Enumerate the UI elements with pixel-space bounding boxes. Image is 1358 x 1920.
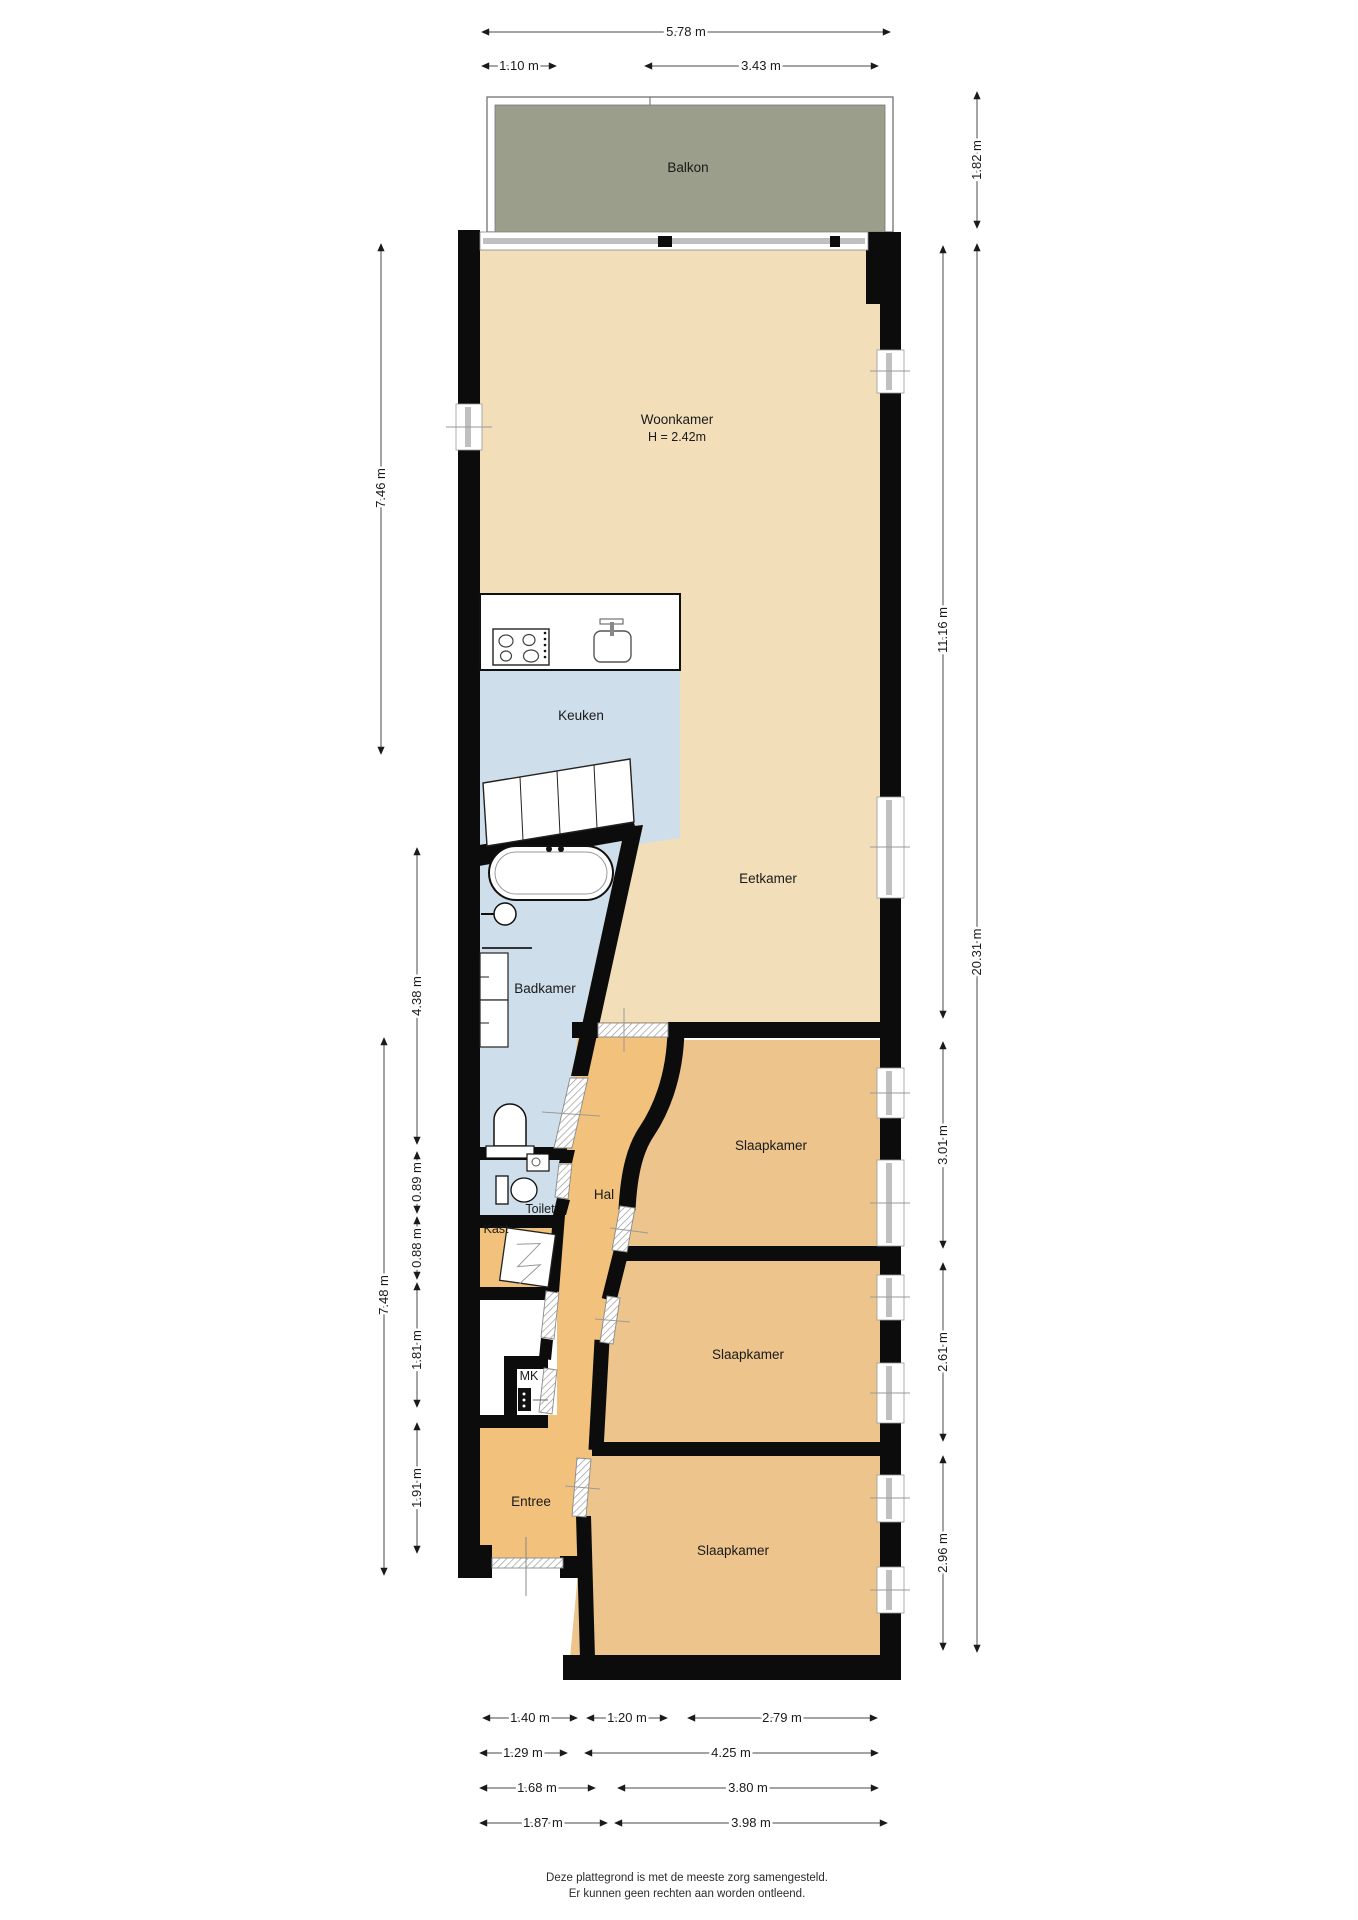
- footer-line1: Deze plattegrond is met de meeste zorg s…: [546, 1872, 828, 1884]
- dim-left-badkamer: 4.38 m: [409, 976, 424, 1016]
- bath-cabinets: [480, 953, 508, 1047]
- hal-slaap2-wall-b: [596, 1340, 602, 1450]
- dim-bottom-1-1: 1.40 m: [510, 1710, 550, 1725]
- dim-bottom-2-2: 4.25 m: [711, 1745, 751, 1760]
- label-badkamer: Badkamer: [514, 981, 576, 996]
- bathtub-icon: [489, 846, 613, 900]
- dim-right-s1: 3.01 m: [935, 1125, 950, 1165]
- dim-left-entree: 1.91 m: [409, 1468, 424, 1508]
- dim-bottom-4-1: 1.87 m: [523, 1815, 563, 1830]
- top-right-pier: [866, 232, 901, 304]
- dim-right-s2: 2.61 m: [935, 1332, 950, 1372]
- bath-mirror-icon: [494, 903, 516, 925]
- label-balkon: Balkon: [667, 160, 708, 175]
- dim-top-left: 1.10 m: [499, 58, 539, 73]
- dim-top-right: 3.43 m: [741, 58, 781, 73]
- dim-left-lower: 7.48 m: [376, 1275, 391, 1315]
- dim-bottom-4-2: 3.98 m: [731, 1815, 771, 1830]
- dim-bottom-2-1: 1.29 m: [503, 1745, 543, 1760]
- slaap1-slaap2-wall: [617, 1246, 901, 1261]
- label-woonkamer-height: H = 2.42m: [648, 430, 706, 444]
- dim-bottom-1-2: 1.20 m: [607, 1710, 647, 1725]
- label-entree: Entree: [511, 1494, 551, 1509]
- dim-left-mid: 1.81 m: [409, 1330, 424, 1370]
- label-keuken: Keuken: [558, 708, 604, 723]
- door-eetkamer-hal: [598, 1023, 668, 1037]
- footer-line2: Er kunnen geen rechten aan worden ontlee…: [569, 1888, 806, 1900]
- label-woonkamer: Woonkamer: [641, 412, 714, 427]
- footer: Deze plattegrond is met de meeste zorg s…: [546, 1872, 828, 1900]
- label-toilet: Toilet: [525, 1202, 555, 1216]
- geyser-icon: [499, 1228, 555, 1288]
- entree-bottom-wall-l: [458, 1556, 492, 1578]
- dim-left-kast: 0.88 m: [409, 1228, 424, 1268]
- dim-right-balkon: 1.82 m: [969, 140, 984, 180]
- dim-right-total: 20.31 m: [969, 929, 984, 976]
- label-slaapkamer-2: Slaapkamer: [712, 1347, 785, 1362]
- mk-left-wall: [504, 1356, 517, 1415]
- dim-right-s3: 2.96 m: [935, 1533, 950, 1573]
- dim-bottom-3-1: 1.68 m: [517, 1780, 557, 1795]
- stove-icon: [493, 629, 549, 665]
- dim-left-woonkamer: 7.46 m: [373, 468, 388, 508]
- dim-right-upper: 11.16 m: [935, 607, 950, 653]
- floorplan-canvas: Balkon Woonkamer H = 2.42m Keuken Eetkam…: [0, 0, 1358, 1920]
- entree-topleft-wall: [479, 1415, 548, 1428]
- label-hal: Hal: [594, 1187, 614, 1202]
- slaap2-slaap3-wall: [592, 1442, 901, 1456]
- front-door: [492, 1558, 563, 1568]
- slaap3-bottom-wall: [563, 1655, 901, 1680]
- label-mk: MK: [520, 1369, 539, 1383]
- label-slaapkamer-1: Slaapkamer: [735, 1138, 808, 1153]
- dim-bottom-3-2: 3.80 m: [728, 1780, 768, 1795]
- balcony-slider: [480, 232, 868, 250]
- dim-left-toilet: 0.89 m: [409, 1162, 424, 1202]
- right-wall: [880, 232, 901, 1680]
- label-eetkamer: Eetkamer: [739, 871, 797, 886]
- label-slaapkamer-3: Slaapkamer: [697, 1543, 770, 1558]
- label-kast: Kast: [483, 1222, 509, 1236]
- dim-bottom-1-3: 2.79 m: [762, 1710, 802, 1725]
- eetkamer-bottom-wall: [668, 1022, 880, 1038]
- dim-top-total: 5.78 m: [666, 24, 706, 39]
